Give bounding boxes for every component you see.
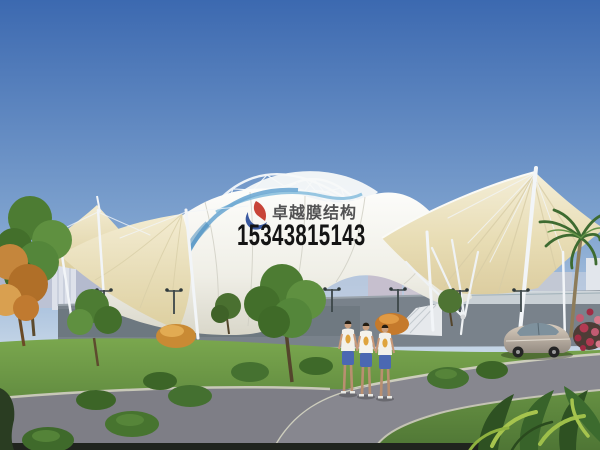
scene-svg — [0, 0, 600, 450]
architectural-rendering: 卓越膜结构 15343815143 — [0, 0, 600, 450]
curb-shadow-strip — [0, 443, 498, 450]
